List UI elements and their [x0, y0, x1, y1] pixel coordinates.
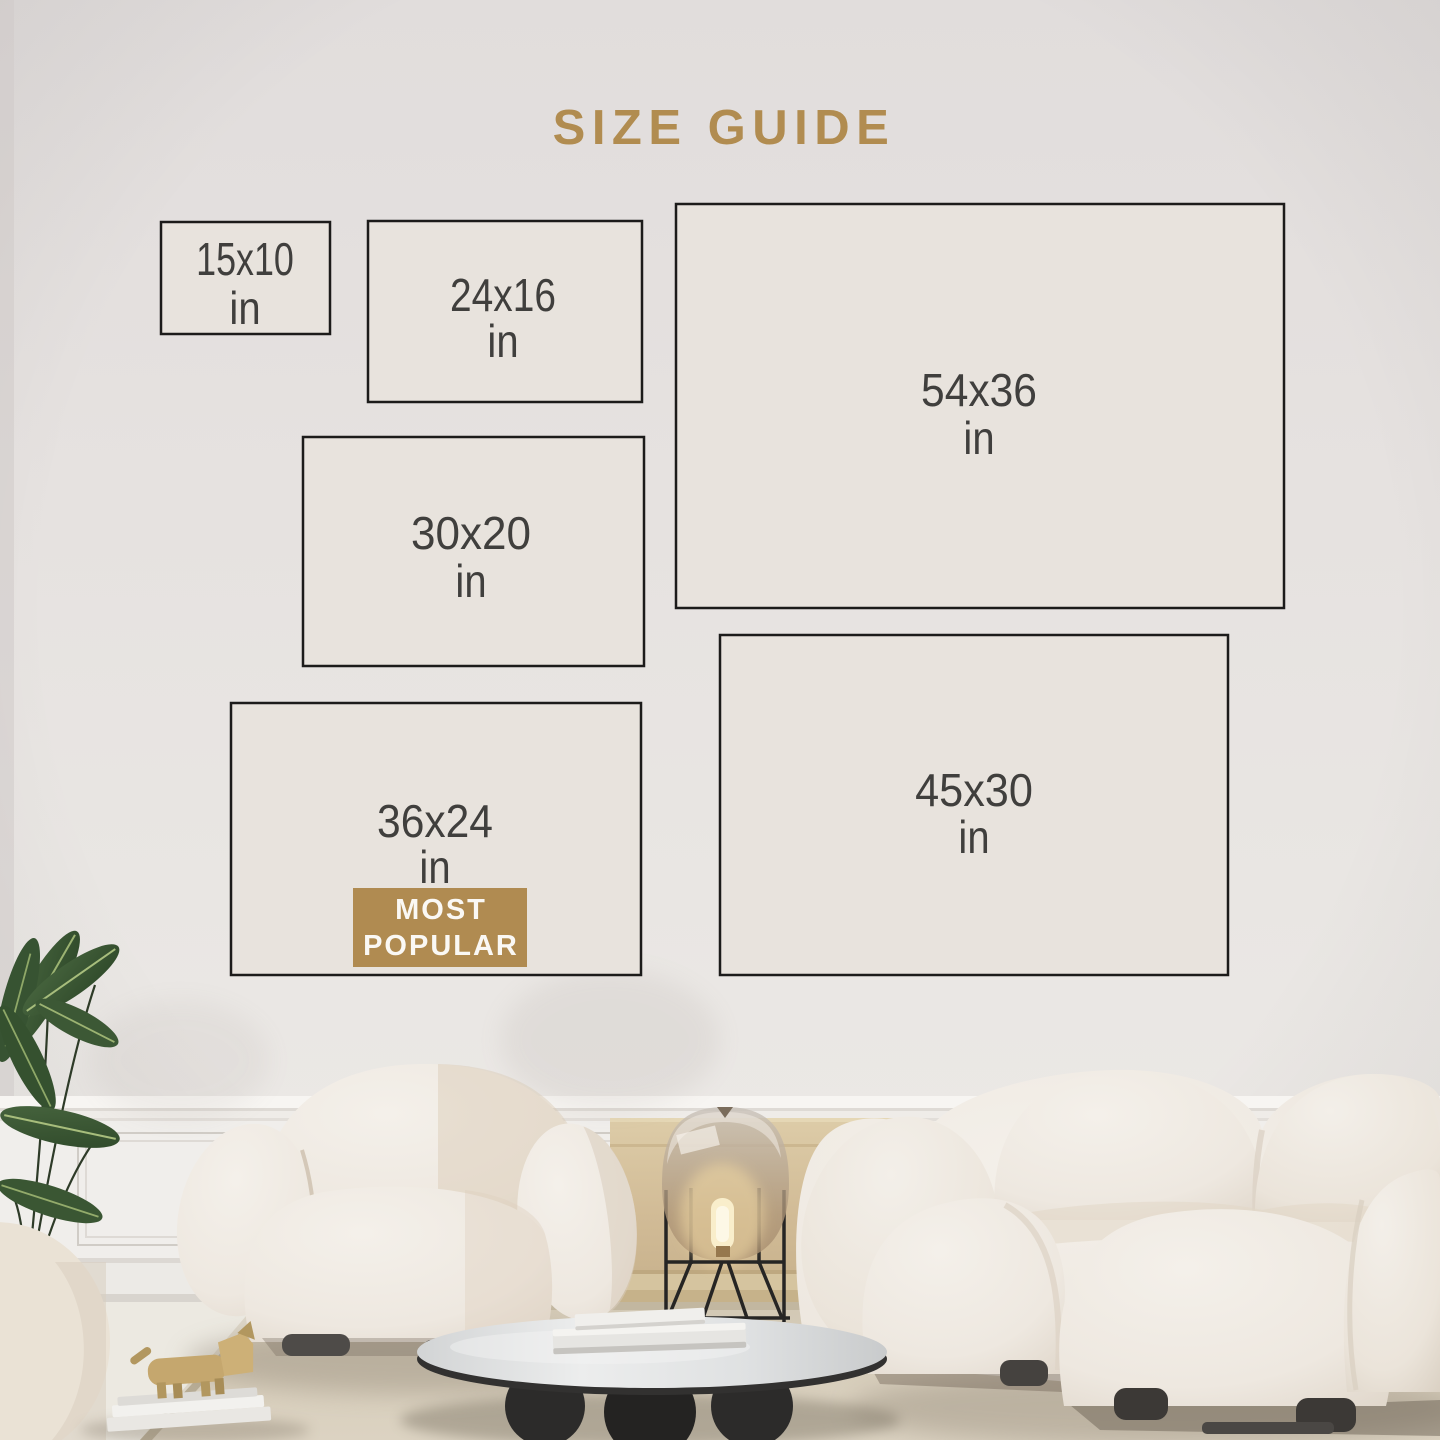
svg-text:30x20: 30x20: [411, 507, 531, 559]
svg-text:in: in: [958, 812, 989, 863]
svg-text:45x30: 45x30: [915, 766, 1033, 816]
svg-text:MOST: MOST: [395, 894, 487, 926]
svg-text:36x24: 36x24: [377, 797, 493, 848]
svg-text:15x10: 15x10: [196, 234, 294, 285]
svg-text:in: in: [419, 842, 450, 893]
svg-text:in: in: [963, 413, 994, 464]
svg-text:in: in: [455, 556, 486, 607]
svg-text:54x36: 54x36: [921, 366, 1037, 417]
svg-text:POPULAR: POPULAR: [363, 930, 519, 962]
svg-text:in: in: [487, 316, 518, 367]
svg-text:SIZE GUIDE: SIZE GUIDE: [553, 101, 896, 155]
svg-text:24x16: 24x16: [450, 270, 556, 322]
svg-text:in: in: [229, 283, 260, 334]
